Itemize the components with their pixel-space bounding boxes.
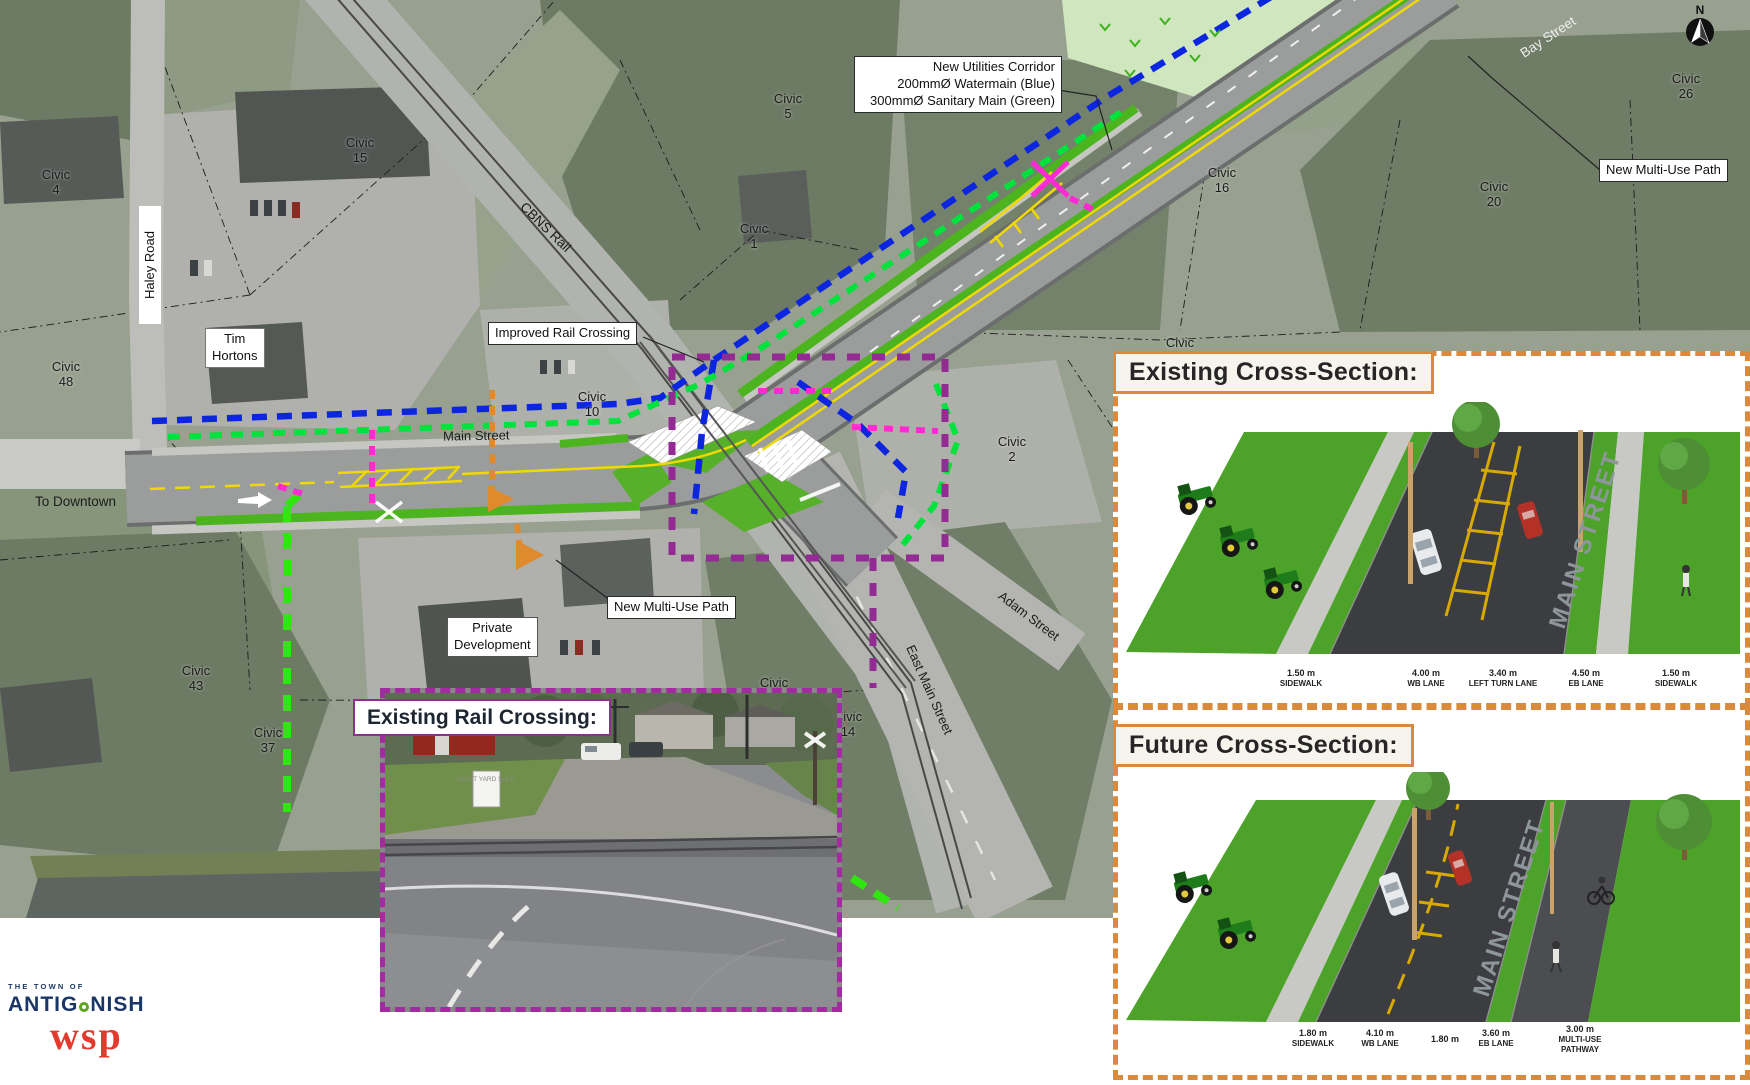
future-dim-multi-use-pathway: 3.00 m MULTI-USE PATHWAY bbox=[1532, 1024, 1628, 1055]
future-dim-eb-lane: 3.60 m EB LANE bbox=[1448, 1028, 1544, 1049]
town-of-antigonish-logo: THE TOWN OF ANTIGNISH bbox=[8, 982, 145, 1016]
existing-cross-section-render: MAIN STREET bbox=[1126, 402, 1740, 654]
civic-label-partial: Civic bbox=[1158, 336, 1202, 351]
civic-label-15: Civic 15 bbox=[338, 136, 382, 166]
wsp-logo: wsp bbox=[50, 1016, 123, 1056]
callout-tim-hortons: Tim Hortons bbox=[205, 328, 265, 368]
rail-crossing-inset-title: Existing Rail Crossing: bbox=[353, 699, 611, 736]
civic-label-16: Civic 16 bbox=[1200, 166, 1244, 196]
callout-new-multi-use-path-northeast: New Multi-Use Path bbox=[1599, 159, 1728, 182]
street-label-main-street: Main Street bbox=[443, 428, 510, 442]
north-compass: N bbox=[1680, 4, 1720, 47]
civic-label-26: Civic 26 bbox=[1664, 72, 1708, 102]
civic-label-2: Civic 2 bbox=[990, 435, 1034, 465]
future-cross-section-render: MAIN STREET bbox=[1126, 772, 1740, 1022]
existing-dim-eb-lane: 4.50 m EB LANE bbox=[1538, 668, 1634, 689]
antigonish-o-ring-icon bbox=[79, 1002, 89, 1012]
future-cross-section-title: Future Cross-Section: bbox=[1113, 724, 1414, 767]
existing-dim-sidewalk-east: 1.50 m SIDEWALK bbox=[1628, 668, 1724, 689]
streetscape-plan-sheet: New Utilities Corridor 200mmØ Watermain … bbox=[0, 0, 1750, 1085]
callout-private-development: Private Development bbox=[447, 617, 538, 657]
civic-label-48: Civic 48 bbox=[44, 360, 88, 390]
future-cross-section-panel: Future Cross-Section: bbox=[1113, 705, 1750, 1080]
existing-rail-crossing-photo: GIANT YARD SALE Existing Rail Crossing: bbox=[380, 688, 842, 1012]
civic-label-5: Civic 5 bbox=[766, 92, 810, 122]
town-logo-prefix: THE TOWN OF bbox=[8, 982, 145, 993]
rail-crossing-photo-image: GIANT YARD SALE bbox=[385, 693, 837, 1007]
compass-n-label: N bbox=[1680, 4, 1720, 16]
existing-dim-left-turn-lane: 3.40 m LEFT TURN LANE bbox=[1455, 668, 1551, 689]
civic-label-10: Civic 10 bbox=[570, 390, 614, 420]
street-label-haley-road: Haley Road bbox=[139, 206, 161, 324]
callout-new-multi-use-path-south: New Multi-Use Path bbox=[607, 596, 736, 619]
callout-improved-rail-crossing: Improved Rail Crossing bbox=[488, 322, 637, 345]
existing-cross-section-panel: Existing Cross-Section: bbox=[1113, 351, 1750, 708]
callout-new-utilities-corridor: New Utilities Corridor 200mmØ Watermain … bbox=[854, 56, 1062, 113]
civic-label-1: Civic 1 bbox=[732, 222, 776, 252]
existing-cross-section-title: Existing Cross-Section: bbox=[1113, 351, 1434, 394]
street-label-to-downtown: To Downtown bbox=[35, 495, 116, 509]
civic-label-37: Civic 37 bbox=[246, 726, 290, 756]
civic-label-4: Civic 4 bbox=[34, 168, 78, 198]
civic-label-43: Civic 43 bbox=[174, 664, 218, 694]
existing-dim-sidewalk-west: 1.50 m SIDEWALK bbox=[1253, 668, 1349, 689]
yard-sale-sign: GIANT YARD SALE bbox=[457, 776, 515, 783]
north-arrow-icon bbox=[1685, 17, 1715, 47]
civic-label-20: Civic 20 bbox=[1472, 180, 1516, 210]
